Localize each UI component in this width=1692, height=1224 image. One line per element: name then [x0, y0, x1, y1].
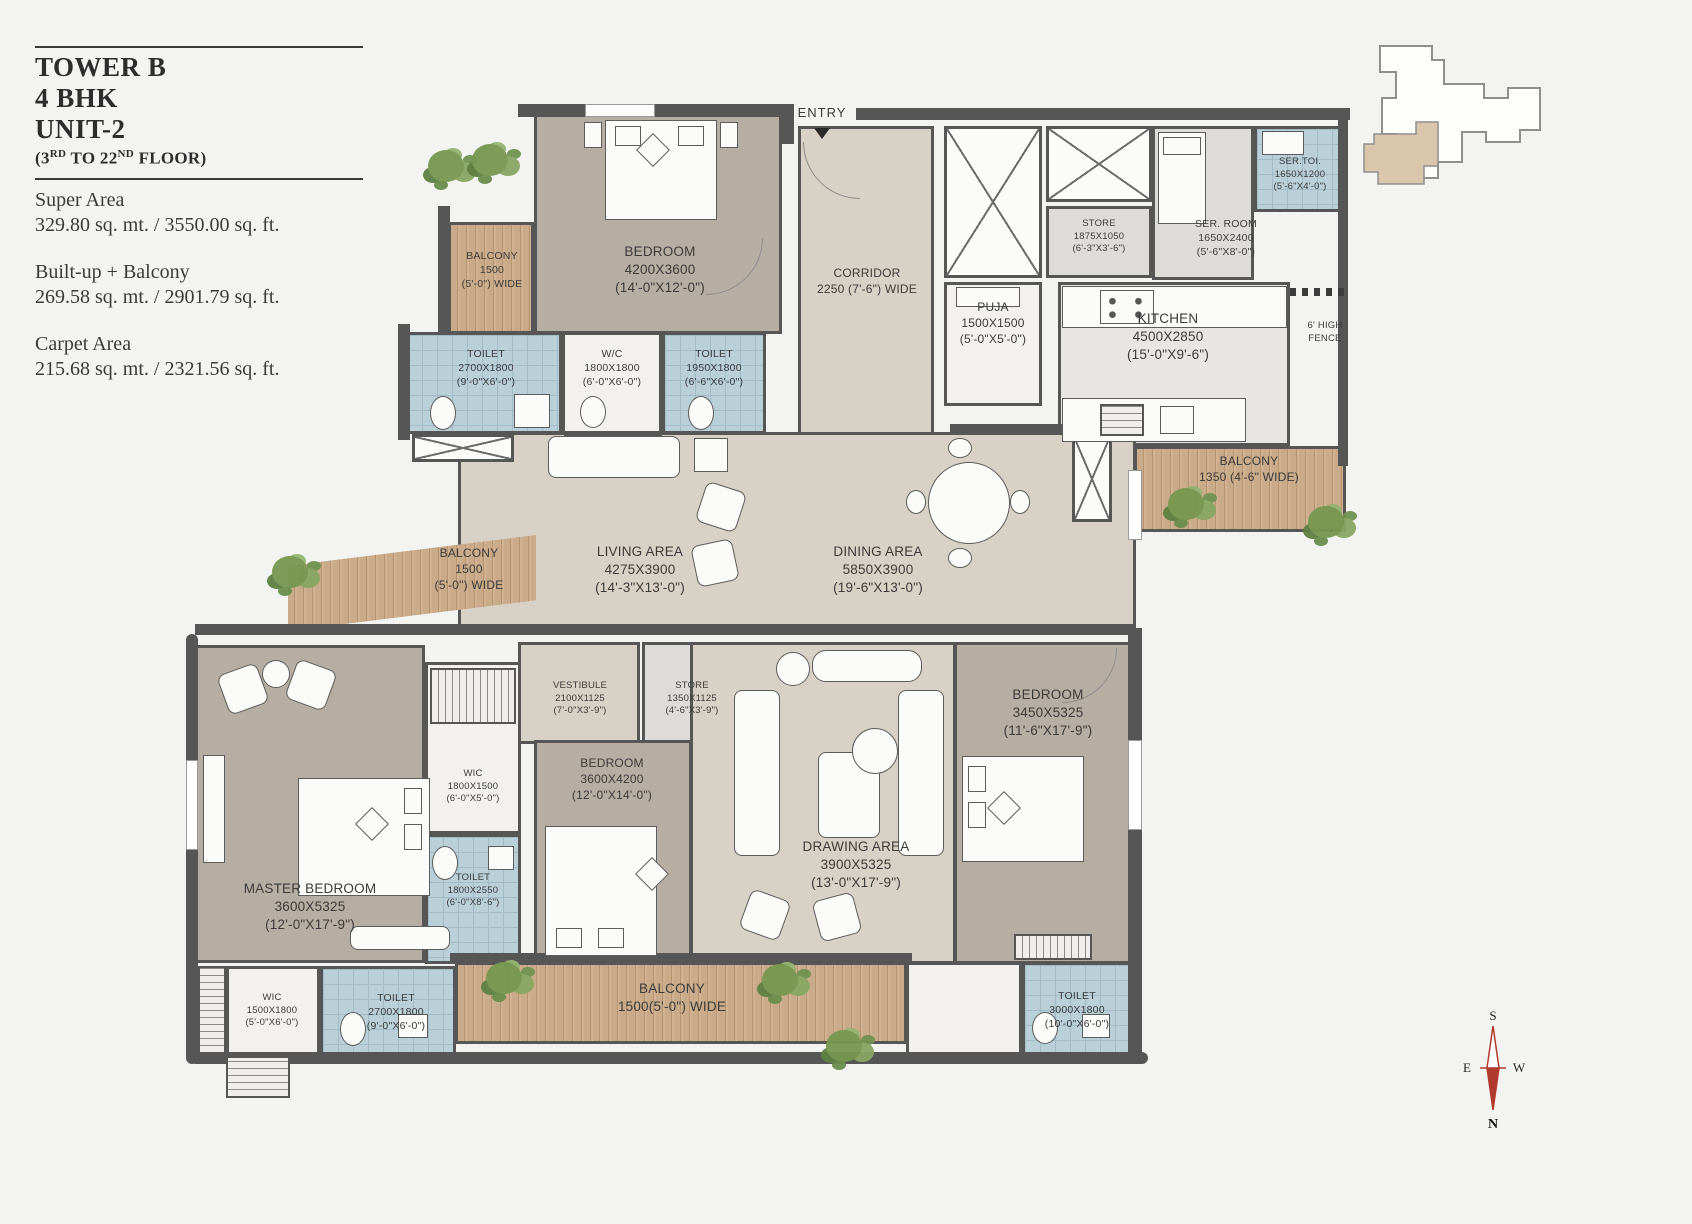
- label-store-mid: STORE1350X1125(4'-6"X3'-9"): [642, 680, 742, 718]
- plant: [486, 962, 522, 994]
- side-table: [584, 122, 602, 148]
- compass-e: E: [1463, 1060, 1471, 1075]
- label-wic-master: WIC1800X1500(6'-0"X5'-0"): [427, 768, 519, 806]
- kitchen-counter: [1062, 398, 1246, 442]
- label-servant-room: SER. ROOM1650X2400(5'-6"X8'-0"): [1166, 218, 1286, 260]
- label-toilet-top-1: TOILET2700X1800(9'-0"X6'-0"): [421, 348, 551, 390]
- wall-segment: [398, 324, 410, 440]
- entry-label: ENTRY: [782, 104, 862, 121]
- plant: [1308, 506, 1344, 538]
- window: [1128, 470, 1142, 540]
- carpet-area: Carpet Area 215.68 sq. mt. / 2321.56 sq.…: [35, 332, 395, 382]
- carpet-area-value: 215.68 sq. mt. / 2321.56 sq. ft.: [35, 357, 395, 382]
- sofa: [898, 690, 944, 856]
- builtup-area-label: Built-up + Balcony: [35, 260, 395, 285]
- label-drawing-area: DRAWING AREA3900X5325(13'-0"X17'-9"): [771, 838, 941, 891]
- ledge-hatch: [1014, 934, 1092, 960]
- pillow: [556, 928, 582, 948]
- fence-dashes: [1290, 288, 1348, 296]
- side-table: [694, 438, 728, 472]
- label-servant-toilet: SER.TOI.1650X1200(5'-6"X4'-0"): [1255, 156, 1345, 194]
- shaft-hatch: [1072, 436, 1112, 522]
- pillow: [598, 928, 624, 948]
- pillow: [1163, 137, 1201, 155]
- label-balcony-top-left: BALCONY1500(5'-0") WIDE: [437, 250, 547, 292]
- wall-segment: [450, 953, 912, 964]
- label-puja: PUJA1500X1500(5'-0"X5'-0"): [938, 300, 1048, 347]
- pillow: [968, 766, 986, 792]
- kitchen-sink: [1160, 406, 1194, 434]
- label-wc: W/C1800X1800(6'-0"X6'-0"): [564, 348, 660, 390]
- dining-chair: [1010, 490, 1030, 514]
- dining-chair: [948, 438, 972, 458]
- label-wic-bottom-left: WIC1500X1800(5'-0"X6'-0"): [230, 992, 314, 1030]
- super-area-value: 329.80 sq. mt. / 3550.00 sq. ft.: [35, 213, 395, 238]
- ledge-hatch: [412, 434, 514, 462]
- entry-arrow-icon: [814, 128, 830, 139]
- closet-hatch: [430, 668, 516, 724]
- label-store-top: STORE1875X1050(6'-3"X3'-6"): [1047, 218, 1151, 256]
- title-block: TOWER B 4 BHK UNIT-2 (3RD TO 22ND FLOOR): [35, 52, 375, 169]
- wall-segment: [856, 108, 930, 120]
- builtup-area-value: 269.58 sq. mt. / 2901.79 sq. ft.: [35, 285, 395, 310]
- label-balcony-bottom: BALCONY1500(5'-0") WIDE: [577, 980, 767, 1016]
- compass-n: N: [1488, 1117, 1498, 1130]
- label-living-area: LIVING AREA4275X3900(14'-3"X13'-0"): [560, 543, 720, 596]
- label-fence: 6' HIGHFENCE: [1292, 320, 1358, 345]
- drawer-unit: [1100, 404, 1144, 436]
- super-area-label: Super Area: [35, 188, 395, 213]
- title-rule-bottom: [35, 178, 363, 180]
- wash-basin: [488, 846, 514, 870]
- side-table: [720, 122, 738, 148]
- title-rule-top: [35, 46, 363, 48]
- window: [186, 760, 198, 850]
- carpet-area-label: Carpet Area: [35, 332, 395, 357]
- wall-segment: [924, 108, 1350, 120]
- sofa: [548, 436, 680, 478]
- plant: [1168, 488, 1204, 520]
- stool: [776, 652, 810, 686]
- label-kitchen: KITCHEN4500X2850(15'-0"X9'-6"): [1088, 310, 1248, 363]
- label-balcony-mid-left: BALCONY1500(5'-0") WIDE: [408, 546, 530, 593]
- builtup-area: Built-up + Balcony 269.58 sq. mt. / 2901…: [35, 260, 395, 310]
- label-bedroom-top: BEDROOM4200X3600(14'-0"X12'-0"): [575, 243, 745, 296]
- wc-pan: [688, 396, 714, 430]
- plant: [428, 150, 464, 182]
- room-lobby-bottom-right: [906, 962, 1022, 1058]
- plant: [472, 144, 508, 176]
- label-toilet-bottom-right: TOILET3000X1800(10'-0"X6'-0"): [1025, 990, 1129, 1032]
- floors-range: (3RD TO 22ND FLOOR): [35, 148, 375, 169]
- dining-table: [928, 462, 1010, 544]
- lift-shaft-1: [944, 126, 1042, 278]
- wall-segment: [1128, 628, 1142, 1064]
- floor-plan-sheet: TOWER B 4 BHK UNIT-2 (3RD TO 22ND FLOOR)…: [0, 0, 1692, 1224]
- wall-segment: [518, 104, 794, 117]
- label-balcony-right: BALCONY1350 (4'-6" WIDE): [1163, 454, 1335, 486]
- label-toilet-bottom-left: TOILET2700X1800(9'-0"X6'-0"): [341, 992, 451, 1034]
- dining-chair: [906, 490, 926, 514]
- pillow: [968, 802, 986, 828]
- wall-segment: [195, 624, 1135, 635]
- pillow: [678, 126, 704, 146]
- unit-title: UNIT-2: [35, 114, 375, 145]
- side-table: [262, 660, 290, 688]
- key-plan: [1352, 40, 1547, 210]
- area-statistics: Super Area 329.80 sq. mt. / 3550.00 sq. …: [35, 188, 395, 404]
- shower-tray: [514, 394, 550, 428]
- door-arc: [206, 860, 207, 861]
- wash-basin: [1262, 131, 1304, 155]
- lift-shaft-2: [1046, 126, 1152, 202]
- wc-pan: [430, 396, 456, 430]
- window: [585, 104, 655, 117]
- window: [1128, 740, 1142, 830]
- plant: [826, 1030, 862, 1062]
- label-bedroom-right: BEDROOM3450X5325(11'-6"X17'-9"): [968, 686, 1128, 739]
- label-toilet-master: TOILET1800X2550(6'-0"X8'-6"): [427, 872, 519, 910]
- compass-icon: S E W N: [1458, 1006, 1528, 1130]
- plant: [272, 556, 308, 588]
- ledge-hatch: [226, 1056, 290, 1098]
- compass-s: S: [1489, 1008, 1496, 1023]
- label-bedroom-mid: BEDROOM3600X4200(12'-0"X14'-0"): [542, 756, 682, 803]
- stool: [852, 728, 898, 774]
- label-master-bedroom: MASTER BEDROOM3600X5325(12'-0"X17'-9"): [215, 880, 405, 933]
- pillow: [404, 824, 422, 850]
- wardrobe: [203, 755, 225, 863]
- label-corridor: CORRIDOR2250 (7'-6") WIDE: [796, 266, 938, 298]
- pillow: [615, 126, 641, 146]
- compass-w: W: [1513, 1060, 1526, 1075]
- pillow: [404, 788, 422, 814]
- ledge-hatch: [198, 966, 226, 1054]
- tower-title: TOWER B: [35, 52, 375, 83]
- label-dining-area: DINING AREA5850X3900(19'-6"X13'-0"): [793, 543, 963, 596]
- super-area: Super Area 329.80 sq. mt. / 3550.00 sq. …: [35, 188, 395, 238]
- label-toilet-top-2: TOILET1950X1800(6'-6"X6'-0"): [662, 348, 766, 390]
- console: [812, 650, 922, 682]
- plant: [762, 964, 798, 996]
- label-vestibule: VESTIBULE2100X1125(7'-0"X3'-9"): [525, 680, 635, 718]
- wall-segment: [190, 1052, 1148, 1064]
- bhk-title: 4 BHK: [35, 83, 375, 114]
- wc-pan: [580, 396, 606, 428]
